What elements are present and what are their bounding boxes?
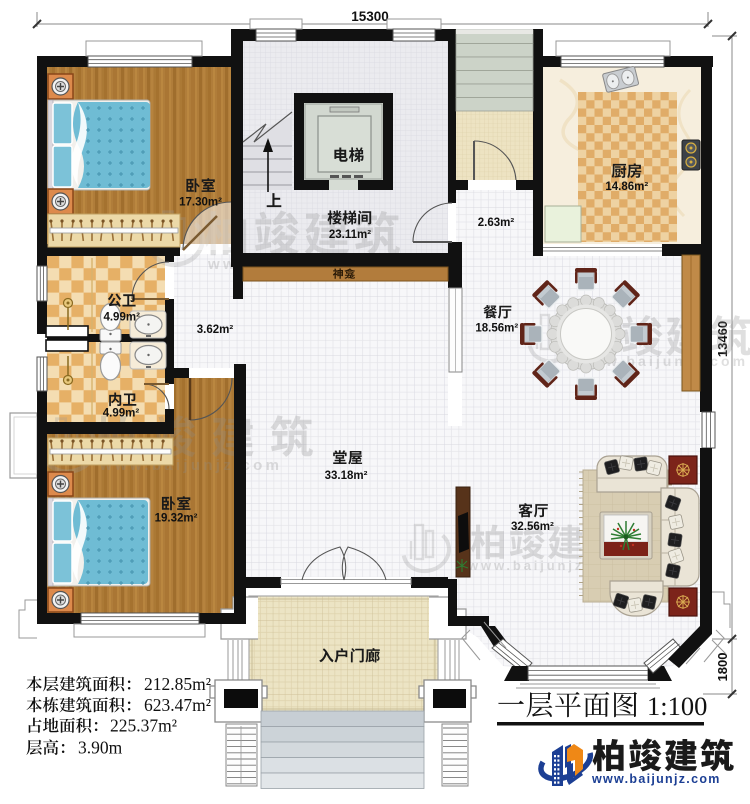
svg-text:19.32m²: 19.32m² (155, 513, 198, 525)
svg-text:1800: 1800 (715, 653, 730, 682)
svg-text:14.86m²: 14.86m² (605, 181, 648, 193)
svg-text:32.56m²: 32.56m² (511, 521, 554, 533)
svg-text:23.11m²: 23.11m² (329, 229, 371, 241)
svg-text:3.62m²: 3.62m² (197, 324, 234, 336)
svg-text:3.90m: 3.90m (78, 738, 123, 758)
svg-text:2.63m²: 2.63m² (478, 217, 515, 229)
svg-text:15300: 15300 (351, 9, 389, 24)
svg-text:212.85m²: 212.85m² (144, 674, 211, 694)
svg-text:4.99m²: 4.99m² (103, 407, 140, 419)
svg-text:623.47m²: 623.47m² (144, 695, 211, 715)
svg-text:www.baijunjz.com: www.baijunjz.com (591, 772, 721, 786)
svg-text:18.56m²: 18.56m² (475, 323, 518, 335)
svg-text:1:100: 1:100 (647, 691, 707, 721)
svg-text:225.37m²: 225.37m² (110, 716, 177, 736)
svg-text:4.99m²: 4.99m² (103, 311, 140, 323)
svg-text:17.30m²: 17.30m² (179, 197, 222, 209)
svg-text:33.18m²: 33.18m² (325, 470, 368, 482)
